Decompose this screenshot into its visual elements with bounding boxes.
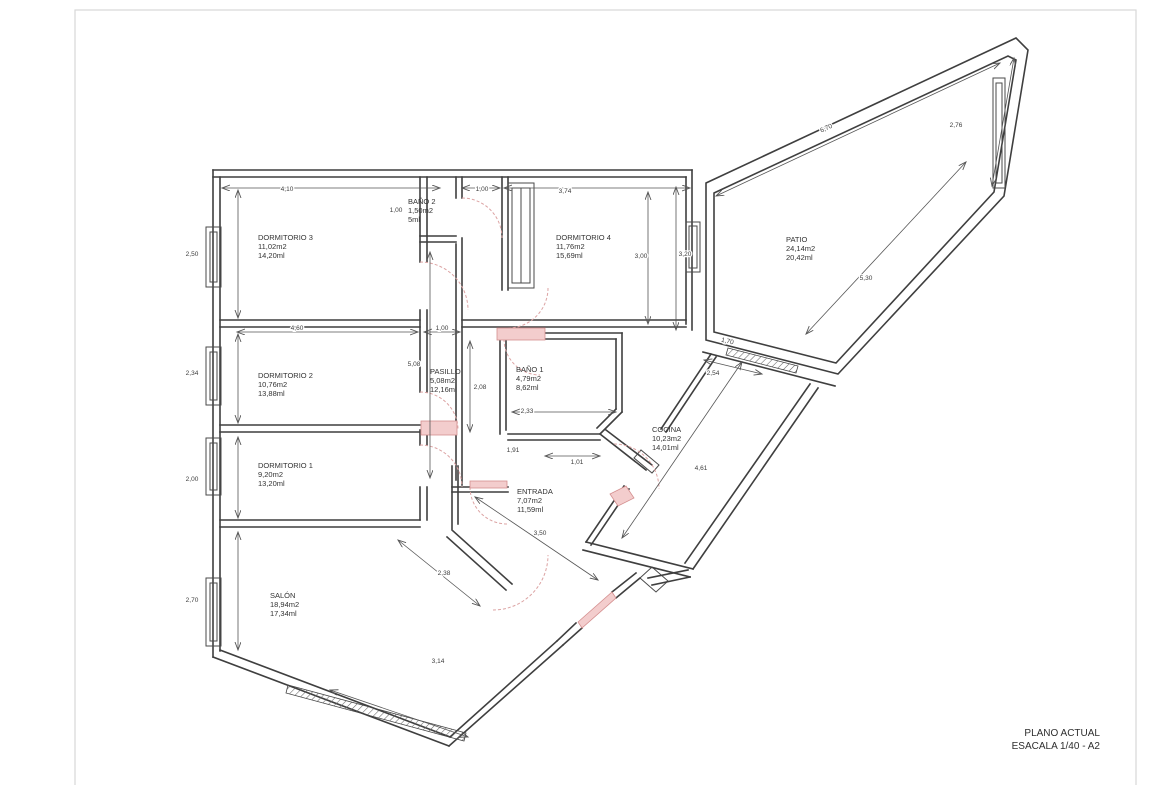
dim-label-17: 2,54	[707, 370, 720, 377]
floor-plan-svg: 2,502,342,002,704,101,003,746,702,763,00…	[0, 0, 1170, 785]
dim-label-0: 2,50	[186, 251, 199, 258]
dim-label-16: 2,08	[474, 384, 487, 391]
dim-label-15: 5,08	[408, 361, 421, 368]
dim-label-6: 3,74	[559, 188, 572, 195]
dim-label-11: 5,30	[860, 275, 873, 282]
dim-label-3: 2,70	[186, 597, 199, 604]
floor-plan-sheet: 2,502,342,002,704,101,003,746,702,763,00…	[0, 0, 1170, 785]
plan-scale: ESACALA 1/40 - A2	[1012, 741, 1101, 752]
dim-label-5: 1,00	[476, 186, 489, 193]
dim-label-13: 4,60	[291, 325, 304, 332]
room-label-cocina: COCINA10,23m214,01ml	[652, 425, 681, 452]
dim-label-4: 4,10	[281, 186, 294, 193]
dim-label-22: 3,50	[534, 530, 547, 537]
dim-label-12: 1,00	[390, 207, 403, 214]
dim-label-1: 2,34	[186, 370, 199, 377]
dim-label-20: 1,01	[571, 459, 584, 466]
dim-label-23: 2,38	[438, 570, 451, 577]
dim-label-9: 3,00	[635, 253, 648, 260]
dim-label-14: 1,00	[436, 325, 449, 332]
dim-label-10: 3,20	[679, 251, 692, 258]
dim-label-24: 3,14	[432, 658, 445, 665]
room-label-salon: SALÓN18,94m217,34ml	[270, 591, 299, 618]
sheet-border	[75, 10, 1136, 785]
dim-label-21: 4,61	[695, 465, 708, 472]
plan-title: PLANO ACTUAL	[1024, 728, 1100, 739]
dim-label-18: 2,33	[521, 408, 534, 415]
pasillo-threshold	[421, 421, 457, 435]
bano1-threshold	[497, 328, 545, 340]
dim-label-2: 2,00	[186, 476, 199, 483]
dim-label-8: 2,76	[950, 122, 963, 129]
dim-label-19: 1,91	[507, 447, 520, 454]
entrada-threshold	[470, 481, 507, 488]
